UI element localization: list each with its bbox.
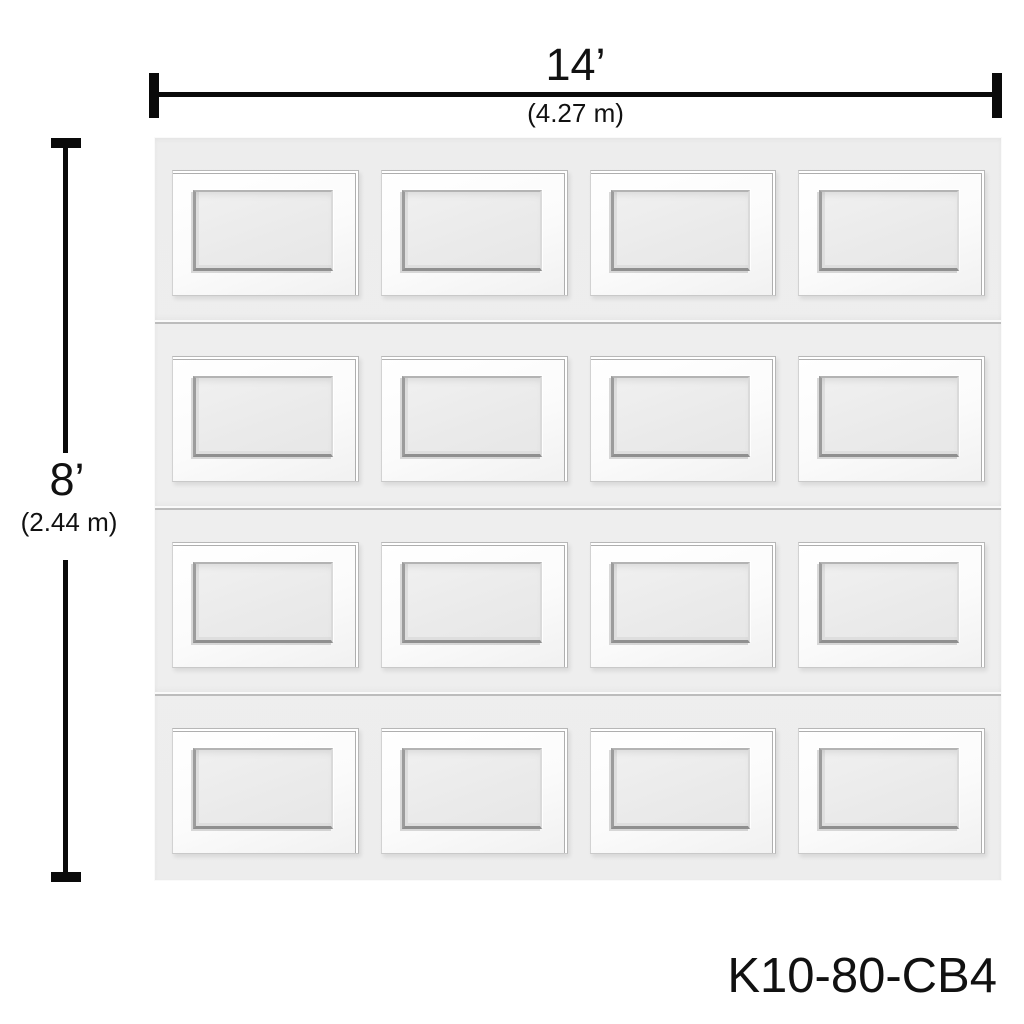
height-dimension-metric-label: (2.44 m) [0, 509, 138, 535]
door-panel [798, 542, 985, 668]
panel-recess [193, 748, 333, 829]
panel-recess [402, 562, 542, 643]
width-dimension-metric-label: (4.27 m) [159, 100, 992, 126]
height-dimension-bottom-end-cap [51, 872, 81, 882]
door-panel [590, 170, 777, 296]
height-dimension-imperial-label: 8’ [0, 457, 134, 502]
height-dimension-line-lower [63, 560, 68, 873]
panel-recess [193, 376, 333, 457]
door-panel [381, 542, 568, 668]
door-section [155, 138, 1001, 324]
panel-recess [193, 562, 333, 643]
panel-recess [819, 562, 959, 643]
door-panel [381, 170, 568, 296]
width-dimension-imperial-label: 14’ [159, 42, 992, 87]
panel-recess [819, 748, 959, 829]
door-section [155, 324, 1001, 510]
door-panel [381, 728, 568, 854]
door-section [155, 696, 1001, 880]
panel-recess [611, 748, 751, 829]
panel-recess [611, 562, 751, 643]
panel-recess [819, 376, 959, 457]
door-panel [172, 542, 359, 668]
garage-door [155, 138, 1001, 880]
panel-recess [819, 190, 959, 271]
door-panel [590, 728, 777, 854]
panel-recess [611, 376, 751, 457]
door-panel [798, 356, 985, 482]
panel-recess [193, 190, 333, 271]
product-code-label: K10-80-CB4 [500, 952, 997, 1001]
panel-recess [611, 190, 751, 271]
door-panel [381, 356, 568, 482]
panel-recess [402, 748, 542, 829]
door-panel [172, 728, 359, 854]
door-panel [798, 728, 985, 854]
height-dimension-line-upper [63, 147, 68, 453]
door-panel [172, 356, 359, 482]
width-dimension-left-end-cap [149, 73, 159, 118]
door-panel [172, 170, 359, 296]
panel-recess [402, 190, 542, 271]
door-panel [590, 356, 777, 482]
width-dimension-line [159, 92, 992, 97]
diagram-canvas: 14’ (4.27 m) 8’ (2.44 m) K10-80-CB4 [0, 0, 1024, 1024]
door-section [155, 510, 1001, 696]
panel-recess [402, 376, 542, 457]
door-panel [798, 170, 985, 296]
door-panel [590, 542, 777, 668]
width-dimension-right-end-cap [992, 73, 1002, 118]
